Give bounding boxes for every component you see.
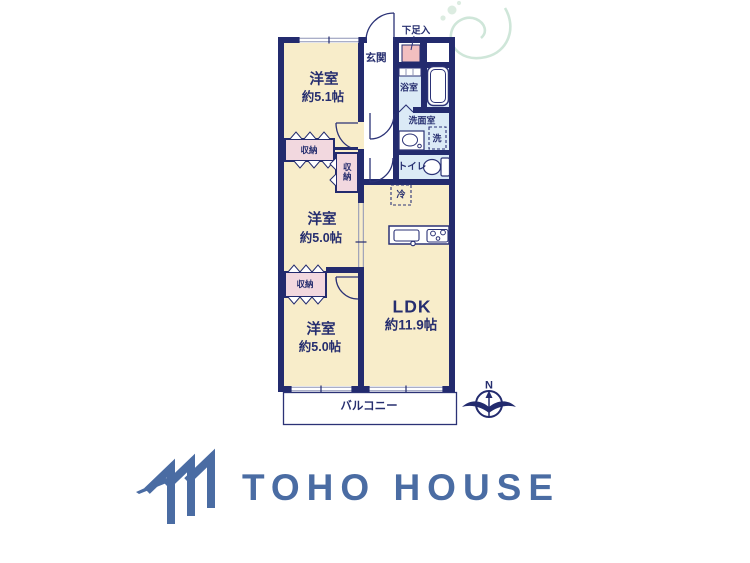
toilet-icon <box>424 158 450 176</box>
balcony-label: バルコニー <box>340 401 397 413</box>
entrance-label: 玄関 <box>366 53 387 64</box>
washbasin-icon <box>399 131 424 150</box>
room1-label: 洋室 <box>310 73 339 88</box>
bath-shelf-icon <box>399 68 421 76</box>
compass-north-label: N <box>485 381 493 392</box>
room3-size: 約5.0帖 <box>299 341 341 354</box>
ldk-size: 約11.9帖 <box>385 318 438 332</box>
bathtub-icon <box>428 67 449 106</box>
refrigerator-label: 冷 <box>396 191 405 200</box>
shoe-cabinet-box <box>402 45 420 62</box>
kitchen-counter-icon <box>389 226 449 246</box>
closet1-label: 収納 <box>300 146 317 155</box>
toho-house-logo-text: TOHO HOUSE <box>242 467 560 509</box>
room2-label: 洋室 <box>308 213 337 228</box>
toho-house-logo-mark <box>136 458 211 524</box>
entrance-door-arc <box>366 13 394 41</box>
room2-size: 約5.0帖 <box>300 232 342 245</box>
closet3-label: 収納 <box>296 280 313 289</box>
room1-size: 約5.1帖 <box>302 91 344 104</box>
washer-label: 洗 <box>432 135 441 144</box>
kitchen-sink-icon <box>394 230 419 241</box>
compass-icon <box>462 391 516 418</box>
closet2-label: 収納 <box>343 163 352 182</box>
bathroom-label: 浴室 <box>400 84 418 93</box>
toilet-label: トイレ <box>398 162 427 172</box>
shoe-cabinet-label: 下足入 <box>402 26 431 36</box>
floorplan-page: 下足入 玄関 浴室 洗面室 洗 トイレ 冷 収納 収納 収納 洋室 約5.1帖 … <box>0 0 750 563</box>
ldk-label: LDK <box>393 298 432 316</box>
washroom-label: 洗面室 <box>408 117 435 126</box>
room3-label: 洋室 <box>307 323 336 338</box>
